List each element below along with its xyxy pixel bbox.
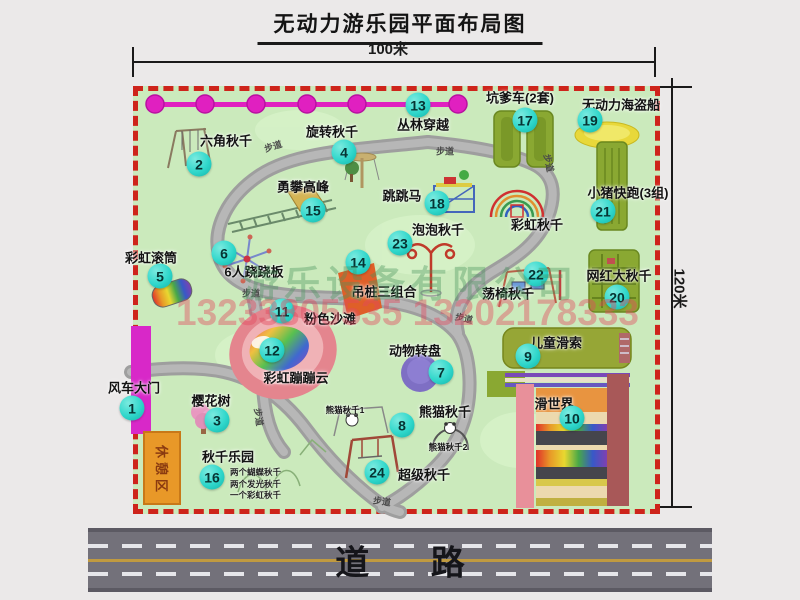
bottom-road: 道 路 [88, 528, 712, 592]
attraction-label: 樱花树 [191, 391, 230, 410]
attraction-badge: 16 [200, 465, 225, 490]
attraction-label: 旋转秋千 [306, 122, 358, 141]
attraction-badge: 20 [605, 285, 630, 310]
attraction-badge: 8 [390, 413, 415, 438]
attraction-badge: 14 [346, 250, 371, 275]
attraction-badge: 15 [301, 198, 326, 223]
attraction-badge: 9 [516, 344, 541, 369]
swing-paradise-detail-line: 两个蝴蝶秋千 [230, 467, 281, 479]
attraction-label: 6人跷跷板 [224, 262, 283, 281]
swing-paradise-details: 两个蝴蝶秋千两个发光秋千一个彩虹秋千 [230, 467, 281, 502]
attraction-label: 彩虹蹦蹦云 [263, 368, 328, 387]
attraction-label: 彩虹滚筒 [125, 248, 177, 267]
attraction-badge: 23 [388, 231, 413, 256]
attraction-badge: 19 [578, 108, 603, 133]
attraction-label: 坑爹车(2套) [486, 88, 554, 107]
rest-area-char: 区 [154, 478, 169, 491]
swing-paradise-detail-line: 一个彩虹秋千 [230, 490, 281, 502]
swing-paradise-detail-line: 两个发光秋千 [230, 479, 281, 491]
attraction-label: 荡椅秋千 [482, 284, 534, 303]
attraction-label: 超级秋千 [398, 465, 450, 484]
rest-area-char: 休 [154, 444, 169, 457]
path-label: 步道 [242, 287, 260, 300]
dimension-tick-right-bottom [656, 506, 692, 508]
attraction-label: 动物转盘 [389, 341, 441, 360]
attraction-label: 泡泡秋千 [412, 220, 464, 239]
dimension-tick-top-right [654, 47, 656, 77]
dimension-tick-right-top [656, 86, 692, 88]
dimension-width-label: 100米 [368, 38, 408, 59]
attraction-label: 秋千乐园 [202, 447, 254, 466]
attraction-badge: 1 [120, 396, 145, 421]
road-label: 道 路 [309, 536, 490, 585]
attraction-label: 熊猫秋千2 [429, 441, 468, 453]
dimension-height-label: 120米 [670, 268, 691, 308]
attraction-label: 粉色沙滩 [304, 309, 356, 328]
attraction-badge: 10 [560, 406, 585, 431]
attraction-badge: 18 [425, 191, 450, 216]
rest-area: 休憩区 [143, 431, 181, 505]
attraction-badge: 3 [205, 408, 230, 433]
attraction-badge: 6 [212, 241, 237, 266]
path-label: 步道 [372, 493, 392, 508]
attraction-badge: 21 [591, 199, 616, 224]
attraction-label: 网红大秋千 [586, 266, 651, 285]
attraction-label: 勇攀高峰 [277, 177, 329, 196]
attraction-label: 吊桩三组合 [351, 282, 416, 301]
attraction-badge: 24 [365, 460, 390, 485]
attraction-badge: 11 [270, 299, 295, 324]
attraction-badge: 7 [429, 360, 454, 385]
attraction-badge: 5 [148, 264, 173, 289]
attraction-label: 六角秋千 [200, 131, 252, 150]
dimension-line-top [133, 61, 655, 63]
attraction-badge: 2 [187, 152, 212, 177]
attraction-label: 熊猫秋千1 [326, 404, 365, 416]
dimension-tick-top-left [132, 47, 134, 77]
attraction-label: 彩虹秋千 [511, 215, 563, 234]
attraction-badge: 12 [260, 338, 285, 363]
attraction-badge: 17 [513, 108, 538, 133]
attraction-label: 跳跳马 [382, 186, 421, 205]
attraction-label: 熊猫秋千 [419, 402, 471, 421]
attraction-badge: 4 [332, 140, 357, 165]
attraction-badge: 13 [406, 93, 431, 118]
attraction-label: 丛林穿越 [397, 115, 449, 134]
attraction-badge: 22 [524, 262, 549, 287]
rest-area-char: 憩 [154, 461, 169, 474]
attraction-label: 风车大门 [108, 378, 160, 397]
screenshot-root: 无动力游乐园平面布局图 100米 120米 [0, 0, 800, 600]
path-label: 步道 [251, 407, 266, 427]
path-label: 步道 [436, 145, 454, 158]
